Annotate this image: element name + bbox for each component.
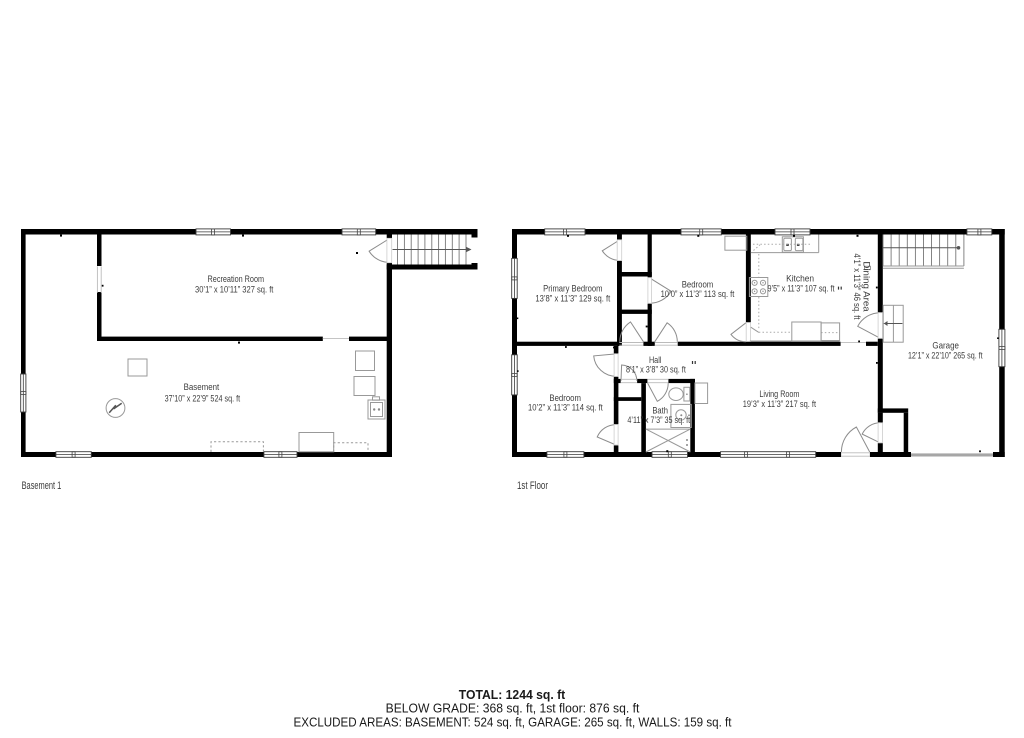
svg-text:8’1” x 3’8” 30 sq. ft: 8’1” x 3’8” 30 sq. ft [626, 365, 686, 376]
svg-text:Recreation Room: Recreation Room [208, 274, 265, 285]
svg-text:4’11” x 7’3” 35 sq. ft: 4’11” x 7’3” 35 sq. ft [627, 415, 690, 426]
svg-text:Basement 1: Basement 1 [22, 480, 62, 492]
svg-text:Basement: Basement [184, 382, 220, 393]
svg-text:12’1” x 22’10” 265 sq. ft: 12’1” x 22’10” 265 sq. ft [908, 351, 983, 362]
svg-text:4’1” x 11’3” 46 sq. ft: 4’1” x 11’3” 46 sq. ft [852, 254, 862, 320]
svg-text:EXCLUDED AREAS: BASEMENT: 524: EXCLUDED AREAS: BASEMENT: 524 sq. ft, GA… [294, 715, 732, 729]
svg-text:10’0” x 11’3” 113 sq. ft: 10’0” x 11’3” 113 sq. ft [661, 289, 735, 300]
svg-text:37’10” x 22’9” 524 sq. ft: 37’10” x 22’9” 524 sq. ft [165, 394, 241, 405]
svg-text:TOTAL: 1244 sq. ft: TOTAL: 1244 sq. ft [459, 687, 566, 702]
svg-text:Garage: Garage [932, 340, 959, 351]
svg-text:1st Floor: 1st Floor [517, 480, 548, 492]
svg-text:19’3” x 11’3” 217 sq. ft: 19’3” x 11’3” 217 sq. ft [743, 399, 817, 410]
svg-text:Dining Area: Dining Area [862, 261, 872, 312]
svg-text:10’2” x 11’3” 114 sq. ft: 10’2” x 11’3” 114 sq. ft [528, 402, 603, 413]
svg-text:30’1” x 10’11” 327 sq. ft: 30’1” x 10’11” 327 sq. ft [195, 285, 274, 296]
svg-text:13’8” x 11’3” 129 sq. ft: 13’8” x 11’3” 129 sq. ft [535, 294, 610, 305]
svg-text:BELOW GRADE: 368 sq. ft, 1st f: BELOW GRADE: 368 sq. ft, 1st floor: 876 … [386, 702, 640, 716]
svg-text:9’5” x 11’3” 107 sq. ft: 9’5” x 11’3” 107 sq. ft [768, 284, 835, 295]
